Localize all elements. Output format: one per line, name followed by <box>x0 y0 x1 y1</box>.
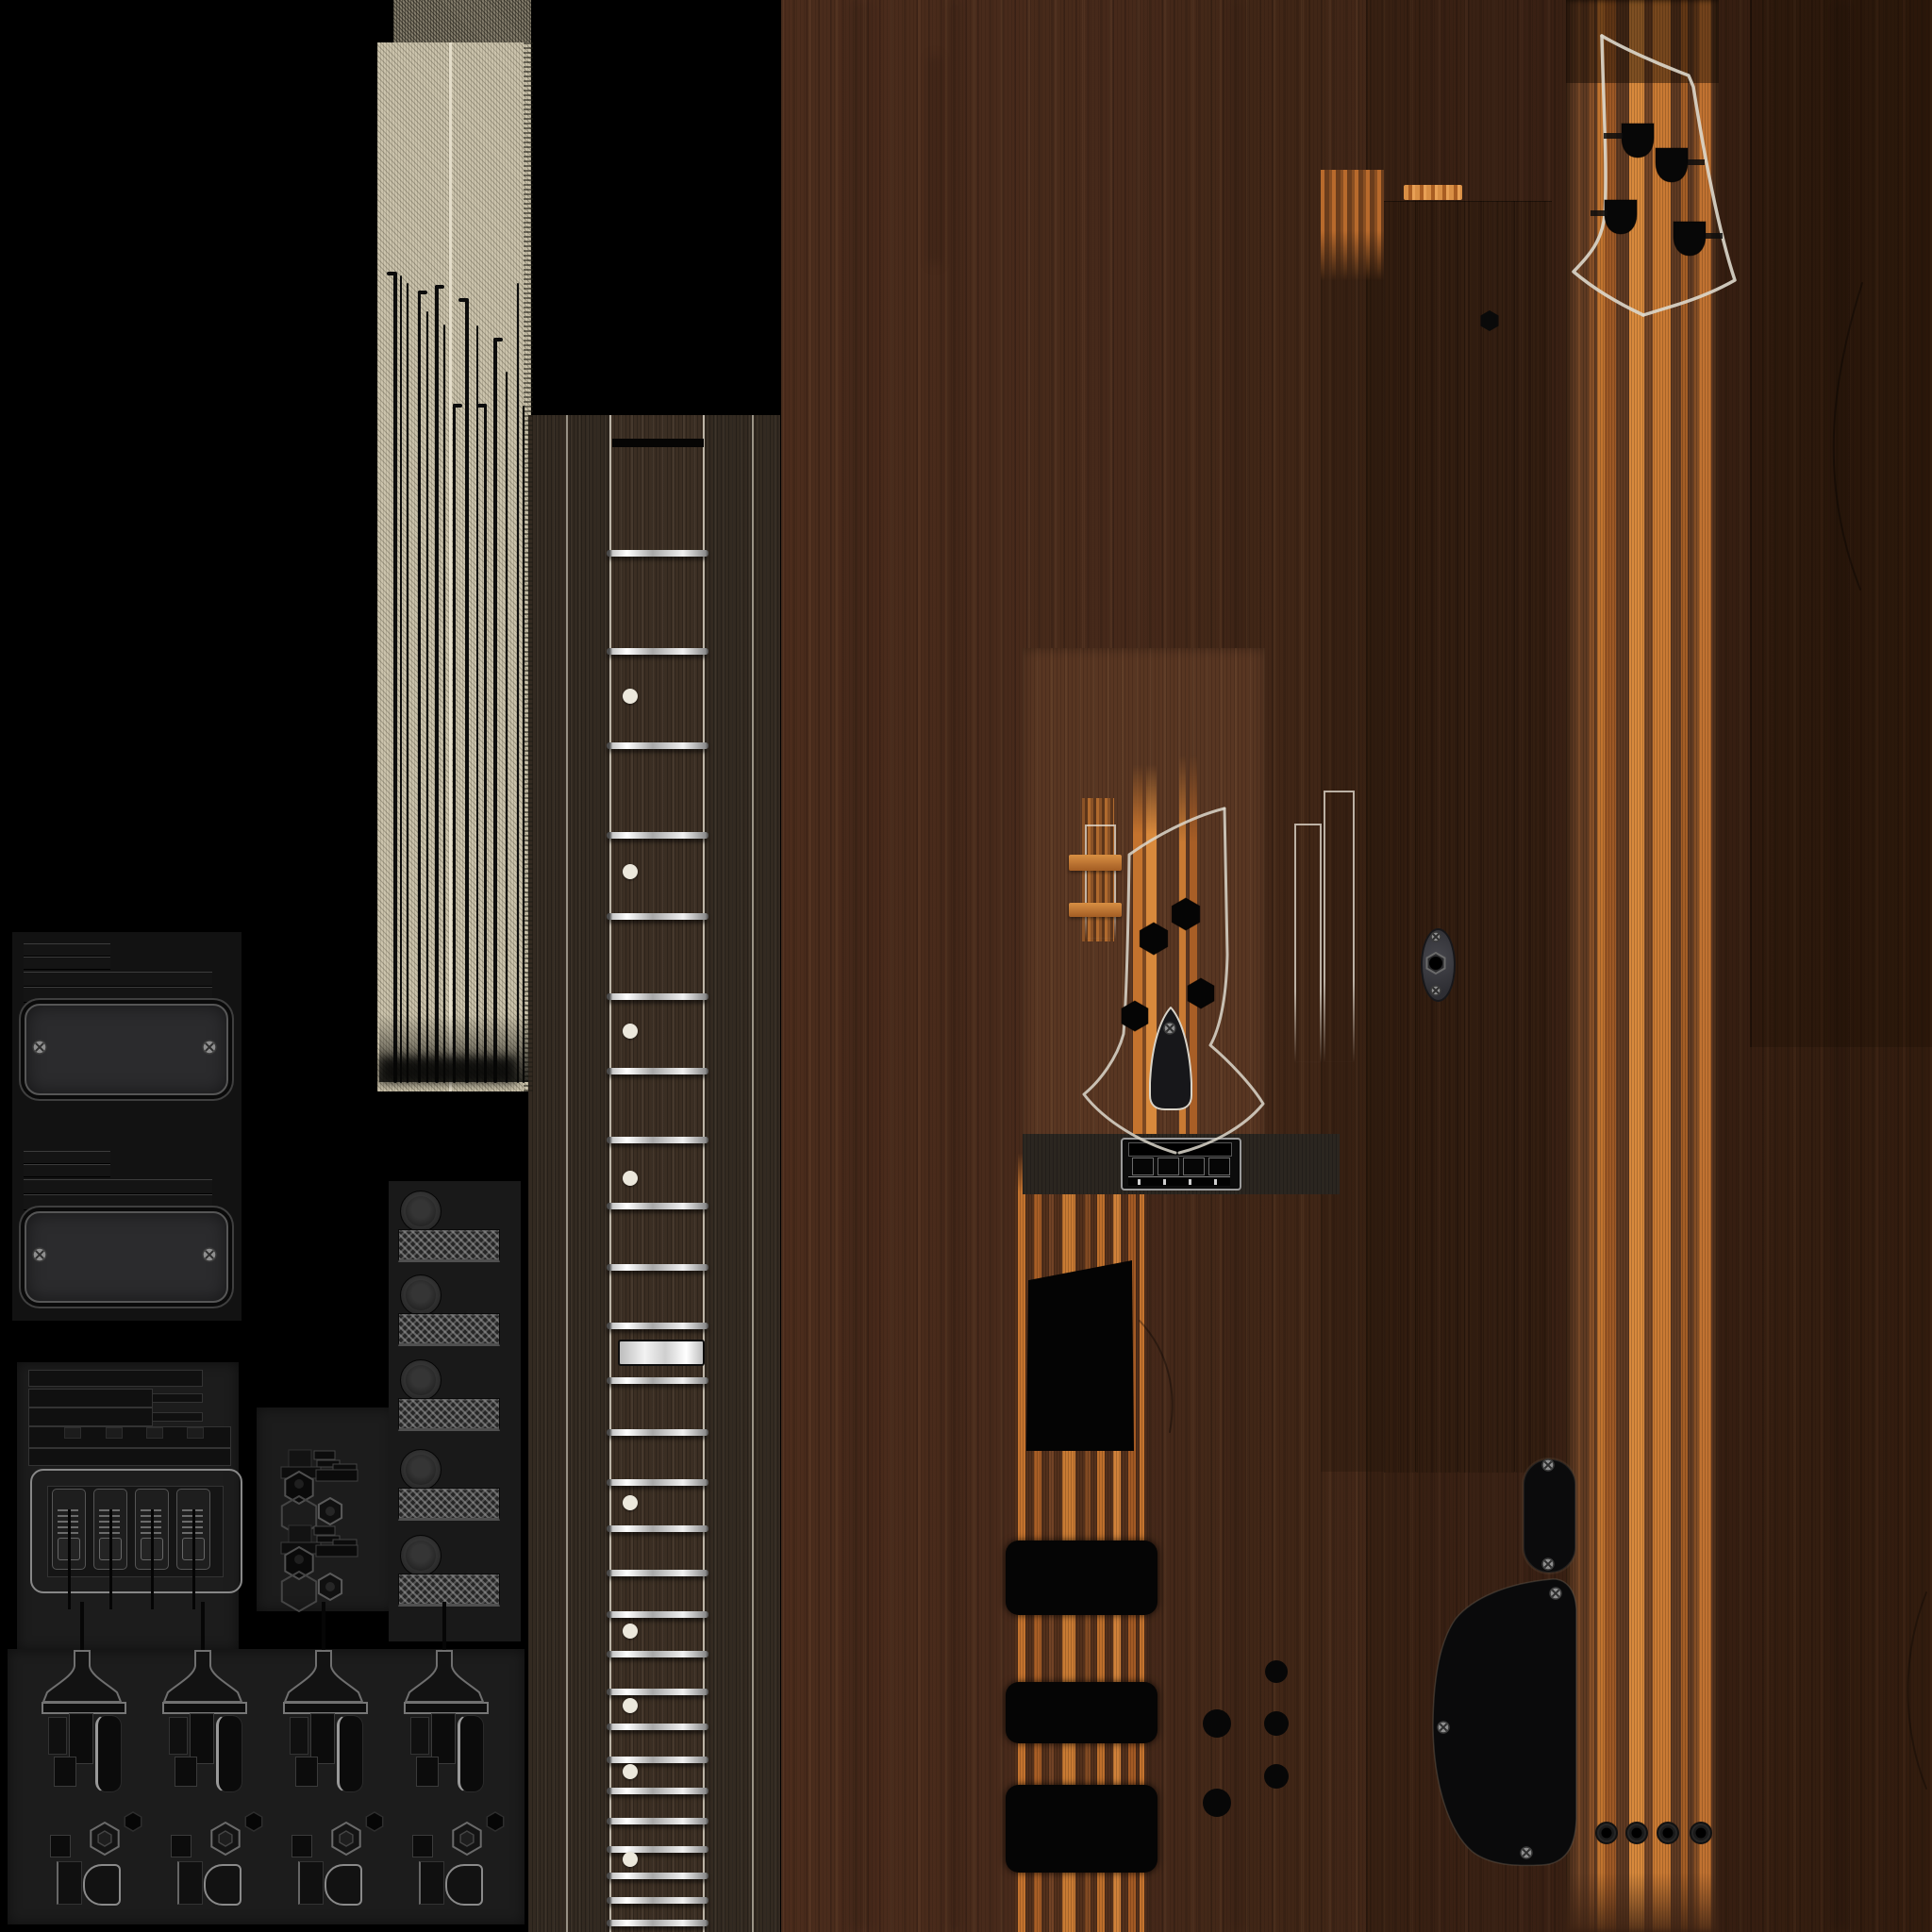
fret-wire <box>607 1264 708 1271</box>
nut-tick <box>1138 1179 1141 1185</box>
string-strand <box>493 338 497 1083</box>
body-pickup-blank <box>1006 1541 1158 1615</box>
bridge-bar-notch <box>187 1427 204 1439</box>
string-strand-hook <box>493 338 503 341</box>
knob-knurl-strip <box>398 1574 500 1607</box>
string-sheet-fringe <box>524 42 533 1091</box>
fret-inlay-dot <box>623 864 638 879</box>
bridge-string-stub <box>192 1509 195 1609</box>
fretboard-edge-line <box>609 415 611 1932</box>
bridge-side-bar <box>151 1393 203 1403</box>
string-strand <box>506 372 508 1083</box>
tuner-stem <box>322 1602 325 1653</box>
battery-cover-capsule <box>1524 1459 1575 1573</box>
fret-wire <box>607 1137 708 1143</box>
tuner-button-side <box>216 1715 242 1792</box>
fret-inlay-dot <box>623 1495 638 1510</box>
wood-seam <box>1750 0 1752 1047</box>
string-strand-hook <box>387 272 396 275</box>
fret-wire <box>607 1429 708 1436</box>
wood-grain-streak <box>948 0 961 1932</box>
pickup-route-quad <box>1024 1258 1136 1453</box>
string-strand <box>393 272 397 1083</box>
fret-wire <box>607 742 708 749</box>
fret-wire <box>607 1570 708 1576</box>
fret-side-marker-line <box>752 415 754 1932</box>
neck-side-outline-rect <box>1324 791 1355 1063</box>
tuner-button-side <box>95 1715 122 1792</box>
pickup-side-strip <box>24 943 110 957</box>
fret-wire <box>607 1724 708 1730</box>
output-jack-plate <box>1421 928 1456 1002</box>
soapbar-pickup-top <box>25 1004 228 1095</box>
string-strand <box>523 406 525 1083</box>
tuner-housing <box>177 1861 203 1905</box>
nut-slot-block <box>1183 1158 1205 1175</box>
texture-atlas-canvas <box>0 0 1932 1932</box>
retainer-orange-bar <box>1069 903 1122 917</box>
tuner-housing <box>290 1717 308 1755</box>
plank-seam <box>1415 201 1416 1472</box>
tuner-housing <box>419 1861 444 1905</box>
plank-seam <box>1514 201 1515 1472</box>
string-strand-hook <box>418 291 427 294</box>
nut-slot-block <box>1208 1158 1230 1175</box>
body-pickup-blank <box>1006 1682 1158 1743</box>
fret-wire <box>607 1920 708 1926</box>
string-strand <box>407 283 408 1083</box>
tuner-button-side <box>458 1715 484 1792</box>
string-strand <box>453 404 456 1083</box>
string-strand-hook <box>458 298 468 302</box>
nut-tick <box>1163 1179 1166 1185</box>
knob-top-circle <box>400 1191 441 1232</box>
retainer-outline-rect <box>1085 824 1116 940</box>
fret-wire <box>607 993 708 1000</box>
string-strand <box>426 311 428 1083</box>
bridge-side-bar <box>28 1407 153 1426</box>
wood-grain-streak <box>849 0 874 1932</box>
fret-wire <box>607 550 708 557</box>
fret-wire <box>607 648 708 655</box>
knob-top-circle <box>400 1274 441 1316</box>
pickup-side-strip <box>24 1164 110 1177</box>
bridge-side-bar <box>28 1389 153 1407</box>
fret-wire <box>607 1689 708 1695</box>
nut-slot-block <box>1132 1158 1154 1175</box>
string-strand-hook <box>435 285 444 289</box>
neck-band-top-shade <box>1566 0 1719 83</box>
pickup-side-strip <box>24 1151 110 1164</box>
fret-wire <box>607 832 708 839</box>
tuner-housing <box>54 1757 76 1787</box>
headstock-stripe-column <box>1179 755 1197 1153</box>
neck-back-stripe-band <box>1566 0 1719 1932</box>
plank-seam <box>1457 201 1458 1472</box>
tuner-housing <box>175 1757 197 1787</box>
fret-wire <box>607 1377 708 1384</box>
string-strand <box>435 285 439 1083</box>
tuner-button-end <box>204 1864 241 1906</box>
fret-inlay-dot <box>623 1852 638 1867</box>
string-retainer-panel <box>257 1407 394 1611</box>
fret-wire <box>607 1525 708 1532</box>
fret-inlay-dot <box>623 1764 638 1779</box>
nut-top-bar <box>1128 1142 1232 1157</box>
tuner-button-side <box>337 1715 363 1792</box>
fret-inlay-dot <box>623 1171 638 1186</box>
wood-mid-column <box>1384 201 1552 1473</box>
knob-knurl-strip <box>398 1229 500 1262</box>
fret-inlay-dot <box>623 1698 638 1713</box>
tuner-housing <box>169 1717 188 1755</box>
fret-wire <box>607 1323 708 1329</box>
tuner-housing <box>410 1717 429 1755</box>
tuner-housing <box>416 1757 439 1787</box>
fret-wire <box>607 1203 708 1209</box>
headstock-stripe-column <box>1133 764 1157 1153</box>
fret-wire <box>607 1846 708 1853</box>
string-sheet-gap <box>449 42 452 1091</box>
string-sheet-smudge-core <box>379 1057 517 1083</box>
tuner-button-end <box>445 1864 483 1906</box>
bridge-bar-notch <box>146 1427 163 1439</box>
knob-knurl-strip <box>398 1398 500 1431</box>
fret-wire <box>607 1479 708 1486</box>
string-strand <box>443 325 445 1083</box>
string-strand <box>476 325 478 1083</box>
fret-wire <box>607 1068 708 1074</box>
string-strand <box>418 291 421 1083</box>
fret-wire <box>607 1651 708 1657</box>
bridge-side-bar <box>28 1448 231 1466</box>
bridge-side-bar <box>151 1412 203 1422</box>
neck-band-bottom-fade <box>1566 1873 1719 1932</box>
soapbar-pickup-top <box>25 1211 228 1303</box>
pickup-side-strip <box>24 1179 212 1194</box>
fret-wire <box>607 913 708 920</box>
fret-wire <box>607 1873 708 1879</box>
tuner-housing <box>57 1861 82 1905</box>
bridge-bar-notch <box>106 1427 123 1439</box>
tuner-button-end <box>325 1864 362 1906</box>
bridge-string-stub <box>151 1509 154 1609</box>
fret-wire <box>607 1788 708 1794</box>
fret-wire <box>607 1611 708 1618</box>
wood-grain-streak <box>1830 0 1853 1932</box>
string-strand-hook <box>453 404 462 408</box>
nut-tick <box>1189 1179 1191 1185</box>
fret-wire <box>607 1757 708 1763</box>
tuner-housing <box>50 1835 71 1857</box>
string-strand <box>484 404 487 1083</box>
fret-wire <box>607 1897 708 1904</box>
tuner-housing <box>171 1835 192 1857</box>
body-pickup-blank <box>1006 1785 1158 1873</box>
fret-side-marker-line <box>566 415 568 1932</box>
bridge-string-stub <box>109 1509 112 1609</box>
tuner-stem <box>80 1602 84 1653</box>
knob-top-circle <box>400 1359 441 1401</box>
fretboard-nut <box>612 439 704 447</box>
retainer-orange-bar <box>1069 855 1122 871</box>
fret-wire <box>607 1818 708 1824</box>
tuner-housing <box>48 1717 67 1755</box>
pickup-side-strip <box>24 987 212 1003</box>
wood-grain-streak <box>932 57 938 264</box>
tuner-housing <box>291 1835 312 1857</box>
string-strand <box>517 283 519 1083</box>
fret-inlay-block <box>618 1340 705 1366</box>
bridge-bar-notch <box>64 1427 81 1439</box>
knob-knurl-strip <box>398 1488 500 1521</box>
pickup-side-strip <box>24 957 110 970</box>
neck-side-outline-rect <box>1294 824 1322 1063</box>
pickup-side-strip <box>24 1194 212 1210</box>
string-strand <box>400 275 402 1083</box>
string-strand <box>465 298 469 1083</box>
pickup-side-strip <box>24 972 212 987</box>
tuner-housing <box>298 1861 324 1905</box>
fret-inlay-dot <box>623 1624 638 1639</box>
zebra-stripe-fragment <box>1321 170 1384 281</box>
knob-knurl-strip <box>398 1313 500 1346</box>
fret-inlay-dot <box>623 1024 638 1039</box>
knob-top-circle <box>400 1449 441 1491</box>
string-strand-hook <box>477 404 487 408</box>
tuner-stem <box>201 1602 205 1653</box>
tuner-button-end <box>83 1864 121 1906</box>
nut-slot-block <box>1158 1158 1179 1175</box>
fret-inlay-dot <box>623 689 638 704</box>
string-sheet-top-strip <box>393 0 531 42</box>
knob-top-circle <box>400 1535 441 1576</box>
fretboard-edge-line <box>703 415 705 1932</box>
nut-tick <box>1214 1179 1217 1185</box>
tuner-housing <box>412 1835 433 1857</box>
zebra-stripe-sliver <box>1404 185 1462 200</box>
bridge-string-stub <box>68 1509 71 1609</box>
tuner-stem <box>442 1602 446 1653</box>
bridge-side-bar <box>28 1370 203 1387</box>
tuner-housing <box>295 1757 318 1787</box>
